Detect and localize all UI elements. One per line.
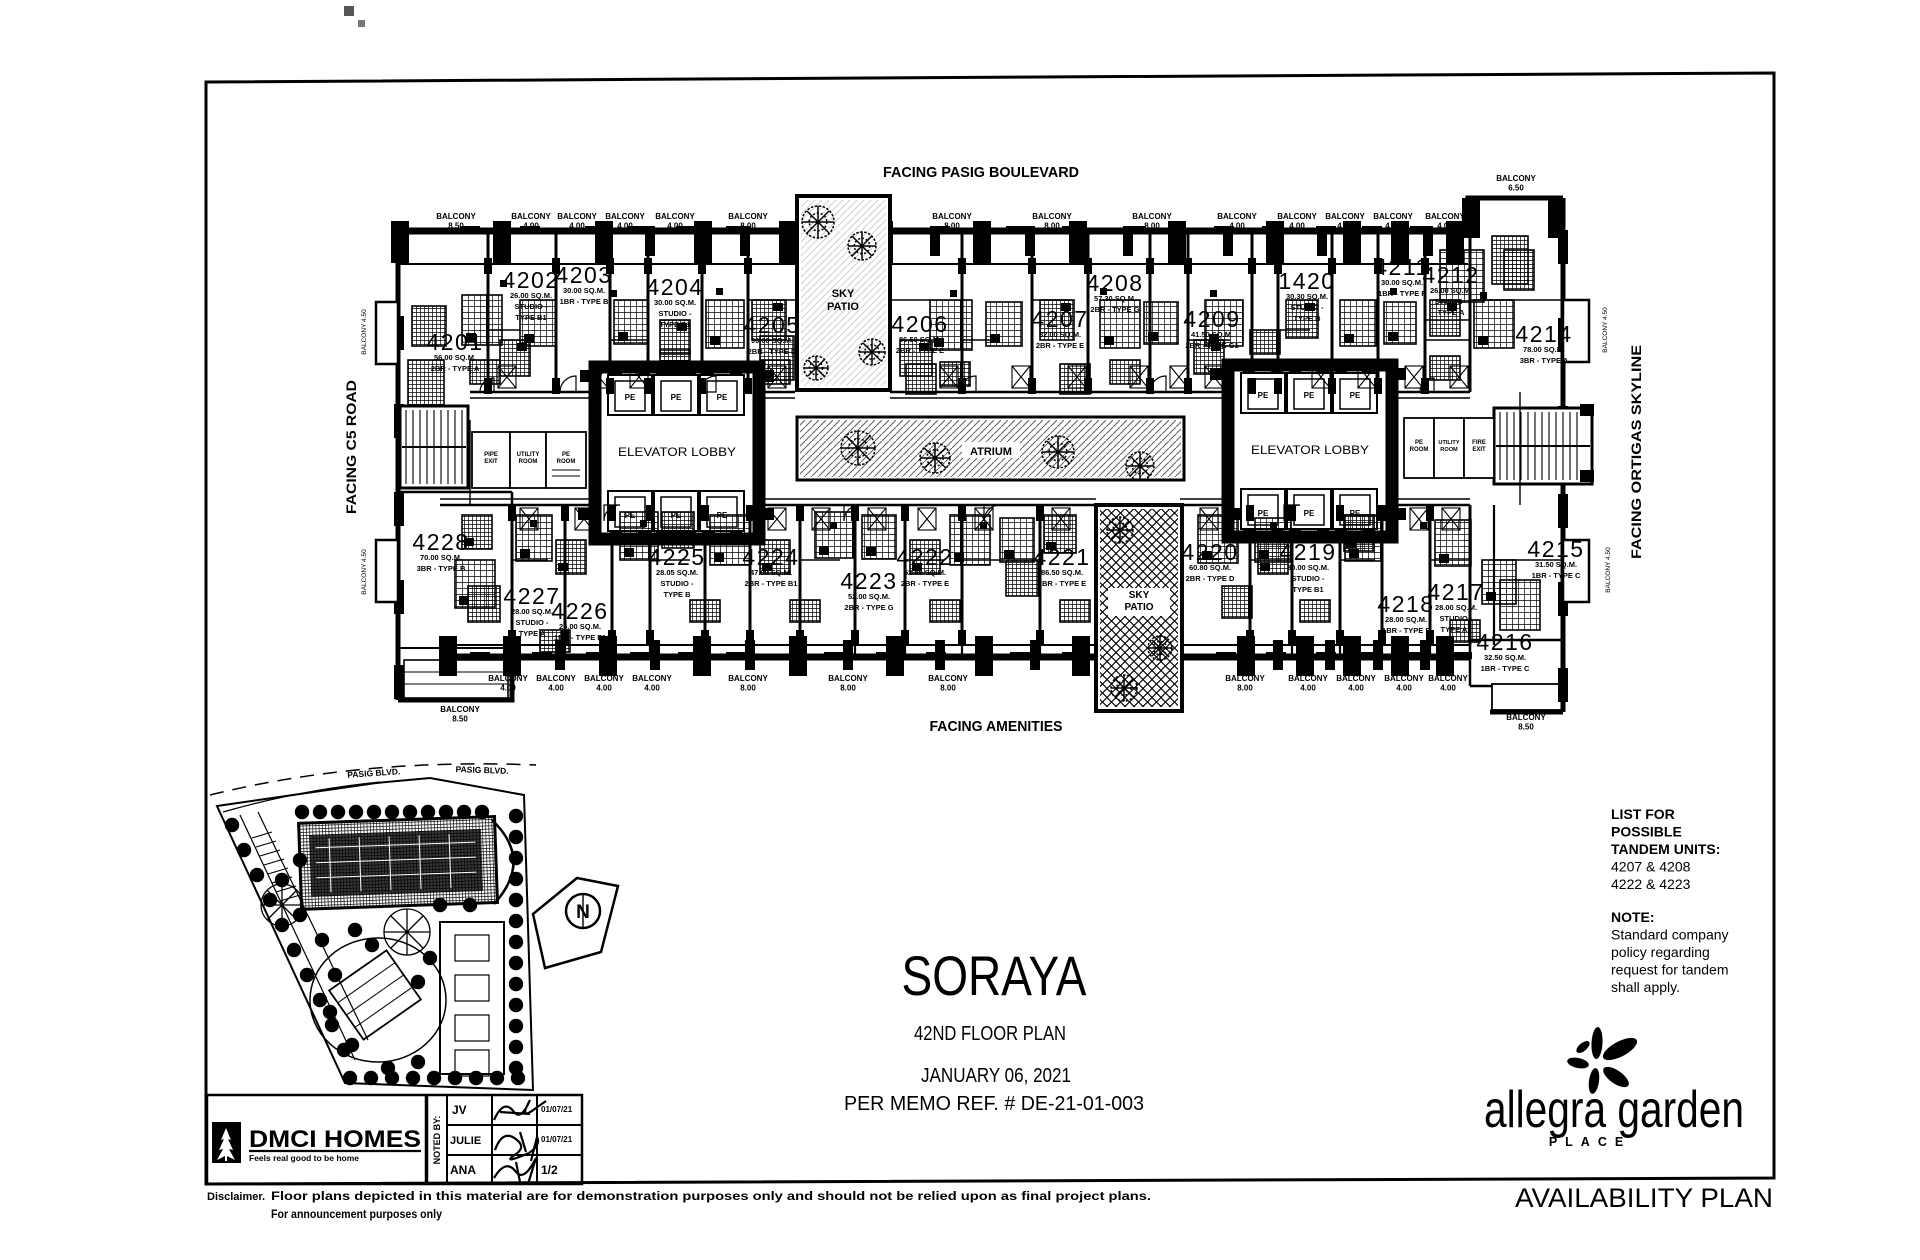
svg-text:4217: 4217 (1427, 579, 1484, 605)
svg-text:1BR - TYPE C: 1BR - TYPE C (1532, 571, 1581, 580)
svg-text:28.00 SQ.M.: 28.00 SQ.M. (1385, 615, 1427, 624)
svg-text:4226: 4226 (551, 598, 608, 624)
svg-text:EXIT: EXIT (1472, 447, 1486, 453)
svg-text:PER MEMO REF. # DE-21-01-003: PER MEMO REF. # DE-21-01-003 (844, 1093, 1144, 1115)
svg-text:ATRIUM: ATRIUM (970, 446, 1012, 458)
svg-text:BALCONY 4.50: BALCONY 4.50 (361, 309, 368, 355)
svg-text:STUDIO -: STUDIO - (1292, 574, 1325, 583)
svg-text:PATIO: PATIO (827, 301, 859, 313)
svg-text:FACING C5 ROAD: FACING C5 ROAD (343, 380, 359, 514)
svg-text:4216: 4216 (1476, 629, 1533, 655)
svg-text:ROOM: ROOM (557, 459, 576, 465)
svg-text:UTILITY: UTILITY (1438, 440, 1459, 446)
svg-text:Feels real good to be home: Feels real good to be home (249, 1153, 359, 1163)
svg-text:28.05 SQ.M.: 28.05 SQ.M. (656, 568, 698, 577)
svg-text:BALCONY 4.50: BALCONY 4.50 (361, 549, 368, 595)
svg-text:JV: JV (452, 1103, 467, 1117)
svg-text:2BR - TYPE E: 2BR - TYPE E (1036, 341, 1084, 350)
svg-text:4228: 4228 (412, 529, 469, 555)
svg-text:allegra garden: allegra garden (1484, 1081, 1744, 1139)
svg-text:28.00 SQ.M.: 28.00 SQ.M. (511, 607, 553, 616)
svg-text:4202: 4202 (502, 267, 559, 293)
svg-text:PE: PE (1258, 509, 1269, 518)
svg-text:2BR - TYPE G: 2BR - TYPE G (844, 603, 893, 612)
svg-text:PE: PE (671, 393, 682, 402)
svg-text:2BR - TYPE E: 2BR - TYPE E (901, 579, 949, 588)
svg-text:STUDIO -: STUDIO - (516, 618, 549, 627)
svg-text:PE: PE (717, 393, 728, 402)
svg-text:ELEVATOR LOBBY: ELEVATOR LOBBY (618, 447, 736, 459)
svg-text:DMCI HOMES: DMCI HOMES (249, 1126, 421, 1153)
svg-text:PASIG BLVD.: PASIG BLVD. (455, 764, 508, 776)
svg-text:4215: 4215 (1527, 536, 1584, 562)
svg-text:Disclaimer.: Disclaimer. (207, 1191, 265, 1203)
svg-text:32.50 SQ.M.: 32.50 SQ.M. (1484, 653, 1526, 662)
svg-text:FIRE: FIRE (1472, 440, 1486, 446)
svg-text:Floor plans depicted in this m: Floor plans depicted in this material ar… (271, 1191, 1151, 1203)
svg-text:SORAYA: SORAYA (902, 944, 1088, 1007)
svg-text:TYPE B1: TYPE B1 (1292, 585, 1323, 594)
svg-text:2BR - TYPE E: 2BR - TYPE E (1038, 579, 1086, 588)
svg-text:STUDIO -: STUDIO - (659, 309, 692, 318)
svg-text:TYPE B: TYPE B (663, 590, 691, 599)
svg-text:PATIO: PATIO (1124, 602, 1153, 613)
svg-text:EXIT: EXIT (484, 459, 498, 465)
svg-text:4223: 4223 (840, 568, 897, 594)
svg-text:42ND FLOOR PLAN: 42ND FLOOR PLAN (914, 1023, 1066, 1045)
svg-text:PE: PE (1350, 391, 1361, 400)
svg-text:1BR - TYPE C: 1BR - TYPE C (1481, 664, 1530, 673)
svg-text:SKY: SKY (1129, 590, 1150, 601)
svg-text:FACING PASIG BOULEVARD: FACING PASIG BOULEVARD (883, 164, 1079, 181)
svg-text:SKY: SKY (832, 288, 855, 300)
svg-text:PE: PE (625, 393, 636, 402)
svg-text:BALCONY 4.50: BALCONY 4.50 (1605, 547, 1612, 593)
svg-text:BALCONY 4.50: BALCONY 4.50 (1602, 307, 1609, 353)
svg-text:52.00 SQ.M.: 52.00 SQ.M. (848, 592, 890, 601)
svg-text:PE: PE (562, 452, 570, 458)
svg-text:ROOM: ROOM (1440, 447, 1458, 453)
svg-text:60.80 SQ.M.: 60.80 SQ.M. (1189, 563, 1231, 572)
svg-text:26.00 SQ.M.: 26.00 SQ.M. (510, 291, 552, 300)
svg-text:30.00 SQ.M.: 30.00 SQ.M. (654, 298, 696, 307)
svg-text:1BR - TYPE F: 1BR - TYPE F (1378, 289, 1426, 298)
svg-text:PIPE: PIPE (484, 452, 498, 458)
svg-text:4204: 4204 (646, 274, 703, 300)
svg-text:ANA: ANA (450, 1163, 476, 1177)
svg-text:For announcement purposes only: For announcement purposes only (271, 1209, 443, 1221)
svg-text:FACING ORTIGAS SKYLINE: FACING ORTIGAS SKYLINE (1628, 345, 1644, 559)
svg-text:30.00 SQ.M.: 30.00 SQ.M. (1381, 278, 1423, 287)
svg-text:2BR - TYPE B1: 2BR - TYPE B1 (745, 579, 798, 588)
svg-text:4203: 4203 (555, 262, 612, 288)
svg-text:1BR - TYPE B: 1BR - TYPE B (560, 297, 609, 306)
svg-text:30.00 SQ.M.: 30.00 SQ.M. (563, 286, 605, 295)
svg-text:4218: 4218 (1377, 591, 1434, 617)
svg-text:1/2: 1/2 (541, 1163, 558, 1177)
svg-text:3BR - TYPE A: 3BR - TYPE A (1520, 356, 1569, 365)
svg-text:86.50 SQ.M.: 86.50 SQ.M. (1041, 568, 1083, 577)
svg-text:PE: PE (1258, 391, 1269, 400)
svg-text:4214: 4214 (1515, 321, 1572, 347)
svg-text:JULIE: JULIE (450, 1135, 481, 1147)
svg-text:4208: 4208 (1086, 270, 1143, 296)
svg-text:31.50 SQ.M.: 31.50 SQ.M. (1535, 560, 1577, 569)
svg-text:30.00 SQ.M.: 30.00 SQ.M. (1287, 563, 1329, 572)
svg-text:ROOM: ROOM (519, 459, 538, 465)
svg-text:STUDIO -: STUDIO - (661, 579, 694, 588)
svg-text:01/07/21: 01/07/21 (541, 1135, 573, 1144)
svg-text:PE: PE (1415, 440, 1423, 446)
svg-text:ELEVATOR LOBBY: ELEVATOR LOBBY (1251, 445, 1369, 457)
svg-text:JANUARY 06, 2021: JANUARY 06, 2021 (921, 1065, 1071, 1087)
svg-text:ROOM: ROOM (1410, 447, 1429, 453)
svg-text:1420: 1420 (1278, 268, 1335, 294)
svg-text:PE: PE (1304, 509, 1315, 518)
svg-text:78.00 SQ.M.: 78.00 SQ.M. (1523, 345, 1565, 354)
svg-text:28.00 SQ.M.: 28.00 SQ.M. (1435, 603, 1477, 612)
svg-text:PE: PE (1304, 391, 1315, 400)
svg-text:FACING AMENITIES: FACING AMENITIES (930, 718, 1063, 735)
svg-text:NOTED BY:: NOTED BY: (432, 1116, 442, 1165)
svg-text:PLACE: PLACE (1549, 1135, 1631, 1149)
svg-text:01/07/21: 01/07/21 (541, 1105, 573, 1114)
svg-text:2BR - TYPE D: 2BR - TYPE D (1186, 574, 1235, 583)
svg-text:1BR - TYPE F: 1BR - TYPE F (1382, 626, 1430, 635)
svg-text:AVAILABILITY PLAN: AVAILABILITY PLAN (1515, 1183, 1773, 1213)
svg-text:UTILITY: UTILITY (517, 452, 540, 458)
